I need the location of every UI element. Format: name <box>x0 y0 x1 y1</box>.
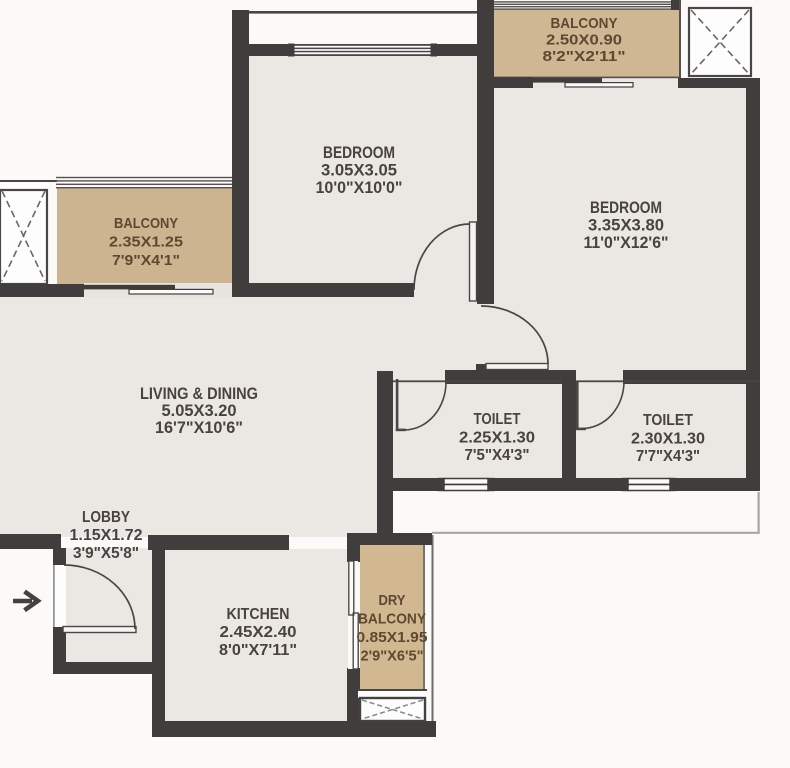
svg-text:3.35X3.80: 3.35X3.80 <box>588 217 664 235</box>
svg-text:16'7"X10'6": 16'7"X10'6" <box>155 419 243 437</box>
svg-text:BALCONY: BALCONY <box>358 611 426 628</box>
svg-text:LIVING & DINING: LIVING & DINING <box>140 385 258 403</box>
svg-text:KITCHEN: KITCHEN <box>227 606 290 623</box>
svg-text:7'7"X4'3": 7'7"X4'3" <box>636 448 700 465</box>
svg-text:8'0"X7'11": 8'0"X7'11" <box>219 642 297 659</box>
svg-text:11'0"X12'6": 11'0"X12'6" <box>584 234 669 252</box>
svg-text:TOILET: TOILET <box>474 411 521 428</box>
svg-text:BALCONY: BALCONY <box>551 15 618 32</box>
svg-text:5.05X3.20: 5.05X3.20 <box>162 402 237 420</box>
svg-text:3'9"X5'8": 3'9"X5'8" <box>73 545 139 562</box>
svg-text:BEDROOM: BEDROOM <box>590 199 662 217</box>
svg-text:1.15X1.72: 1.15X1.72 <box>70 527 143 544</box>
svg-text:2.45X2.40: 2.45X2.40 <box>220 624 297 641</box>
svg-text:2.35X1.25: 2.35X1.25 <box>109 234 183 251</box>
svg-text:8'2"X2'11": 8'2"X2'11" <box>543 48 626 65</box>
svg-text:7'5"X4'3": 7'5"X4'3" <box>465 447 530 464</box>
svg-text:2.25X1.30: 2.25X1.30 <box>459 430 535 447</box>
svg-text:BEDROOM: BEDROOM <box>323 144 395 162</box>
svg-text:7'9"X4'1": 7'9"X4'1" <box>112 252 180 269</box>
svg-text:TOILET: TOILET <box>643 412 693 429</box>
svg-text:10'0"X10'0": 10'0"X10'0" <box>316 179 403 197</box>
svg-text:LOBBY: LOBBY <box>82 509 130 526</box>
svg-text:0.85X1.95: 0.85X1.95 <box>357 629 428 646</box>
svg-text:2.50X0.90: 2.50X0.90 <box>546 32 622 49</box>
svg-text:DRY: DRY <box>379 592 406 609</box>
svg-text:2.30X1.30: 2.30X1.30 <box>631 431 705 448</box>
svg-text:2'9"X6'5": 2'9"X6'5" <box>361 648 424 665</box>
svg-text:3.05X3.05: 3.05X3.05 <box>321 162 397 180</box>
svg-text:BALCONY: BALCONY <box>114 215 178 232</box>
